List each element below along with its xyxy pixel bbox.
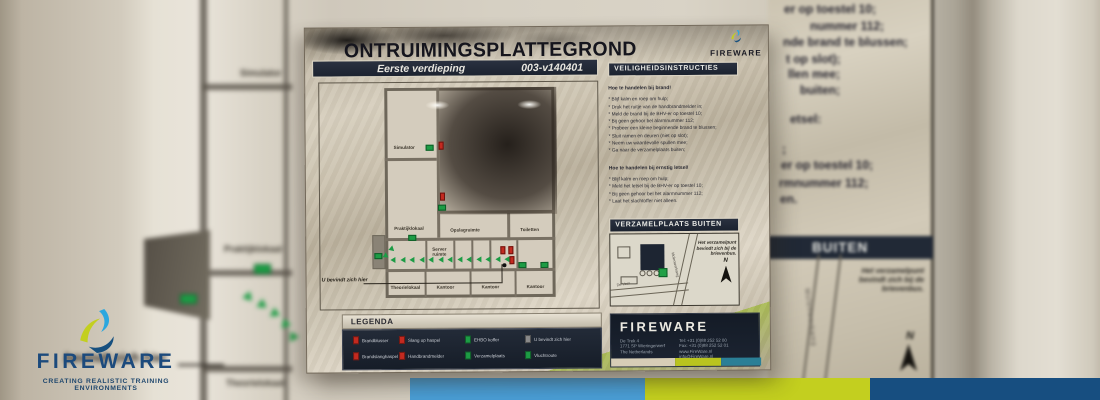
you-are-here-dot — [502, 263, 506, 267]
legend-icon-3 — [525, 335, 531, 343]
room-label-simulator: Simulator — [394, 145, 415, 150]
escape-route-arrow — [438, 257, 443, 263]
safety-instructions-text: Hoe te handelen bij brand! * Blijf kalm … — [608, 80, 741, 206]
instruction-line: * Laat het slachtoffer niet alleen. — [609, 197, 741, 205]
bg-text-fragment: en. — [780, 192, 797, 206]
legend-icon-6 — [465, 351, 471, 359]
escape-route-arrow — [504, 256, 509, 262]
fireware-wordmark: FIREWARE — [20, 350, 192, 374]
bg-exit-sign-icon — [254, 264, 271, 274]
footer-strip-beige — [611, 358, 675, 366]
legend-item: Handbrandmelder — [399, 352, 444, 360]
exit-sign-icon — [438, 205, 446, 211]
footer-contact: Tel: +31 (0)88 252 52 00Fax: +31 (0)88 2… — [679, 338, 729, 360]
wall-segment — [514, 270, 516, 297]
bg-text-fragment: er op toestel 10; — [784, 2, 876, 16]
wall-segment — [424, 271, 426, 298]
bg-room-label: Theorielokaal — [226, 378, 284, 388]
floor-plan: Simulator Praktijklokaal Opslagruimte To… — [318, 81, 600, 311]
sign-brand-block: FIREWARE — [705, 29, 767, 57]
fireware-tagline: CREATING REALISTIC TRAINING ENVIRONMENTS — [16, 378, 196, 392]
footer-strip-lime — [675, 358, 721, 366]
legend-panel: Brandblusser Slang op haspel EHBO koffer… — [342, 328, 602, 371]
bg-text-fragment: buiten; — [800, 83, 840, 97]
bg-assembly-note: Het verzamelpunt bevindt zich bij de bri… — [844, 266, 924, 293]
leader-line — [501, 264, 502, 283]
fireware-logo-icon — [72, 308, 124, 354]
legend-label: Brandslanghaspel — [362, 353, 398, 358]
bg-text-fragment: ; — [782, 142, 786, 156]
exit-sign-icon — [540, 262, 548, 268]
footer-wordmark: FIREWARE — [620, 319, 709, 335]
bg-exit-sign-icon — [180, 294, 197, 304]
escape-route-arrow — [428, 257, 433, 263]
north-label: N — [723, 258, 727, 264]
floor-label: Eerste verdieping — [377, 62, 465, 75]
map-main-building — [640, 244, 664, 270]
exit-sign-icon — [408, 235, 416, 241]
sign-subtitle-bar: Eerste verdieping 003-v140401 — [312, 59, 598, 78]
bg-wall-corner — [934, 0, 1100, 400]
footer-strip-teal — [721, 357, 761, 365]
bg-text-fragment: er op toestel 10; — [781, 158, 873, 172]
bg-text-fragment: rmnummer 112; — [779, 176, 868, 190]
bottom-bar-lime — [645, 378, 870, 400]
north-arrow-icon — [720, 266, 731, 283]
escape-route-arrow — [485, 256, 490, 262]
wall-segment — [202, 270, 292, 276]
room-label-serverruimte: Server ruimte — [430, 247, 448, 257]
wall-segment — [425, 241, 427, 269]
escape-route-arrow — [495, 256, 500, 262]
map-building-outline — [617, 246, 630, 258]
legend-icon-1 — [399, 336, 405, 344]
legend-label: EHBO koffer — [474, 337, 499, 342]
legend-item: Brandblusser — [353, 336, 389, 344]
bg-escape-arrow-icon — [278, 318, 291, 331]
escape-route-arrow — [447, 257, 452, 263]
injury-section-list: * Blijf kalm en roep om hulp;* Meld het … — [609, 176, 741, 206]
wall-segment — [200, 0, 207, 400]
wall-segment — [469, 270, 471, 297]
fire-section-title: Hoe te handelen bij brand! — [608, 85, 740, 93]
legend-item: U bevindt zich hier — [525, 335, 571, 343]
doc-number: 003-v140401 — [521, 61, 583, 73]
you-are-here-label: U bevindt zich hier — [322, 277, 368, 283]
legend-icon-7 — [525, 351, 531, 359]
bg-room-label: Praktijklokaal — [224, 244, 282, 254]
wall-segment — [489, 240, 491, 268]
hose-reel-icon — [508, 246, 513, 254]
room-label-kantoor-1: Kantoor — [437, 285, 455, 290]
map-street-label: De Vest — [616, 281, 630, 287]
extinguisher-icon — [509, 256, 514, 264]
assembly-point-icon — [658, 268, 667, 277]
room-label-kantoor-3: Kantoor — [527, 284, 545, 289]
legend-label: Handbrandmelder — [408, 353, 444, 358]
escape-route-arrow — [476, 256, 481, 262]
wall-segment — [453, 241, 455, 269]
bg-escape-arrow-icon — [241, 291, 252, 303]
bg-escape-arrow-icon — [267, 307, 280, 320]
fireware-logo-small-icon — [728, 30, 743, 43]
bg-text-fragment: nummer 112; — [810, 19, 884, 33]
bg-text-fragment: nde brand te blussen; — [783, 35, 908, 49]
wall-segment — [471, 240, 473, 268]
assembly-note: Het verzamelpunt bevindt zich bij de bri… — [694, 240, 736, 257]
room-label-kantoor-2: Kantoor — [482, 284, 500, 289]
bottom-bar-navy — [870, 378, 1100, 400]
legend-item: Verzamelplaats — [465, 351, 505, 359]
room-label-toiletten: Toiletten — [520, 227, 539, 232]
bg-text-fragment: t op slot); — [786, 52, 841, 66]
bg-panel-border — [931, 0, 934, 400]
map-tree-icon — [640, 270, 646, 276]
escape-route-arrow — [390, 257, 395, 263]
room-label-theorielokaal: Theorielokaal — [391, 285, 421, 290]
escape-route-arrow — [466, 256, 471, 262]
photo-scene: Simulator Praktijklokaal Theorielokaal b… — [0, 0, 1100, 400]
wall-segment — [507, 210, 510, 240]
legend-item: EHBO koffer — [465, 335, 499, 343]
exit-sign-icon — [426, 145, 434, 151]
wall-segment — [202, 366, 292, 372]
bottom-bar-blue — [410, 378, 645, 400]
bg-text-fragment: etsel: — [790, 112, 821, 126]
escape-route-arrow — [419, 257, 424, 263]
footer-address: De Trek 41771 SP WieringerwerfThe Nether… — [620, 338, 665, 360]
escape-route — [319, 82, 597, 84]
bg-assembly-header-fragment: BUITEN — [768, 236, 933, 259]
fireware-branding: FIREWARE CREATING REALISTIC TRAINING ENV… — [16, 306, 196, 400]
legend-label: Brandblusser — [362, 338, 389, 343]
background-right-blur: er op toestel 10; nummer 112; nde brand … — [768, 0, 1100, 400]
extinguisher-icon — [500, 246, 505, 254]
evacuation-sign: ONTRUIMINGSPLATTEGROND Eerste verdieping… — [304, 24, 771, 373]
legend-label: U bevindt zich hier — [534, 336, 571, 341]
bg-escape-arrow-icon — [254, 299, 266, 312]
wall-segment — [202, 84, 292, 90]
legend-icon-5 — [399, 352, 405, 360]
instruction-line: * Ga naar de verzamelplaats buiten; — [609, 147, 741, 155]
sign-brand-wordmark: FIREWARE — [705, 48, 767, 57]
safety-instructions-header: VEILIGHEIDSINSTRUCTIES — [608, 62, 738, 77]
legend-icon-4 — [353, 352, 359, 360]
legend-icon-0 — [353, 336, 359, 344]
legend-icon-2 — [465, 335, 471, 343]
escape-route-arrow — [409, 257, 414, 263]
bg-text-fragment: llen mee; — [788, 67, 840, 81]
room-label-opslagruimte: Opslagruimte — [450, 227, 480, 232]
exit-sign-icon — [518, 262, 526, 268]
footer-address-line: The Netherlands — [620, 349, 665, 355]
escape-route-arrow — [400, 257, 405, 263]
map-street-label: Molenwerkweg — [670, 252, 679, 278]
assembly-map: Molenwerkweg De Vest Het verzamelpunt be… — [609, 233, 740, 307]
fire-section-list: * Blijf kalm en roep om hulp;* Druk het … — [608, 96, 740, 155]
legend-item: Slang op haspel — [399, 336, 440, 344]
injury-section-title: Hoe te handelen bij ernstig letsel! — [609, 164, 741, 172]
extinguisher-icon — [439, 142, 444, 150]
legend-label: Verzamelplaats — [474, 353, 505, 358]
extinguisher-icon — [440, 193, 445, 201]
assembly-header: VERZAMELPLAATS BUITEN — [609, 218, 739, 233]
legend-item: Brandslanghaspel — [353, 352, 398, 360]
legend-label: Vluchtroute — [534, 352, 557, 357]
legend-item: Vluchtroute — [525, 351, 557, 359]
map-tree-icon — [647, 270, 653, 276]
bg-room-label: Simulator — [240, 68, 282, 78]
escape-route-arrow — [457, 257, 462, 263]
bg-north-label: N — [906, 330, 914, 342]
room-label-praktijklokaal: Praktijklokaal — [394, 226, 424, 231]
sign-footer-panel: FIREWARE De Trek 41771 SP WieringerwerfT… — [610, 312, 760, 367]
wall-segment — [385, 158, 437, 161]
legend-label: Slang op haspel — [408, 337, 440, 342]
